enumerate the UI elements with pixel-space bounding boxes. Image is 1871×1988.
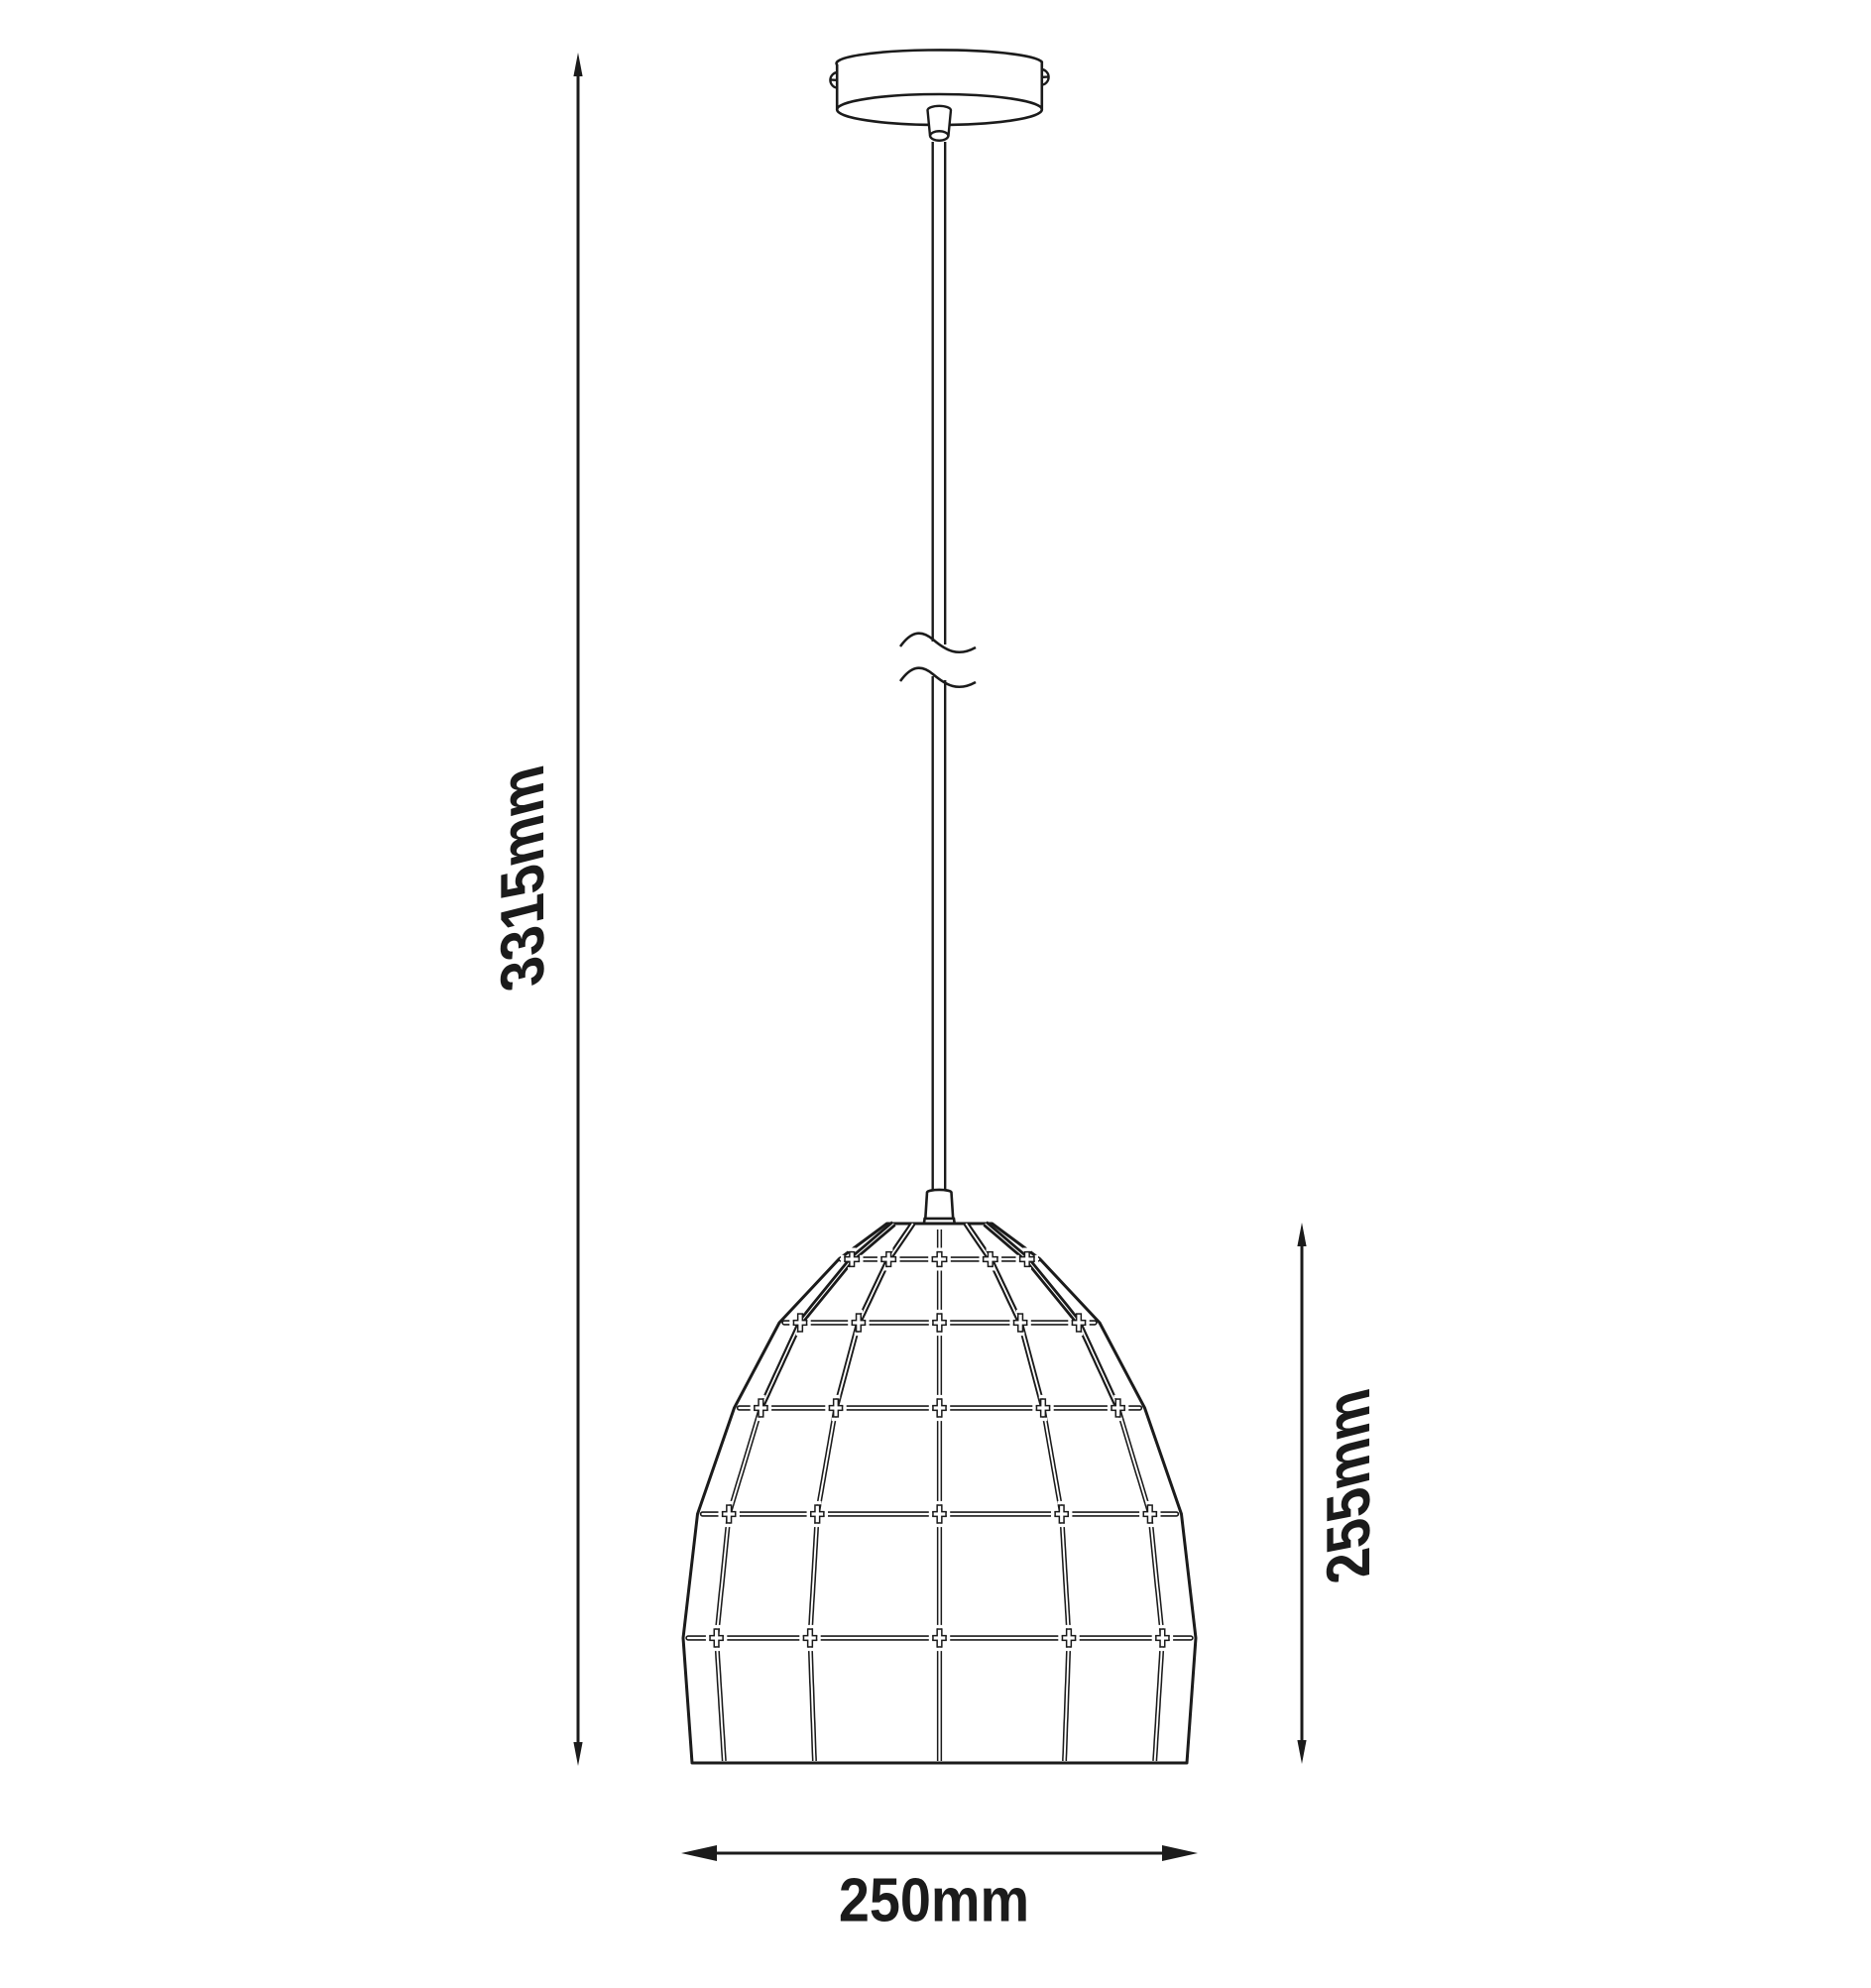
svg-text:3315mm: 3315mm: [488, 760, 556, 998]
svg-text:255mm: 255mm: [1314, 1382, 1382, 1590]
svg-text:250mm: 250mm: [839, 1867, 1029, 1934]
